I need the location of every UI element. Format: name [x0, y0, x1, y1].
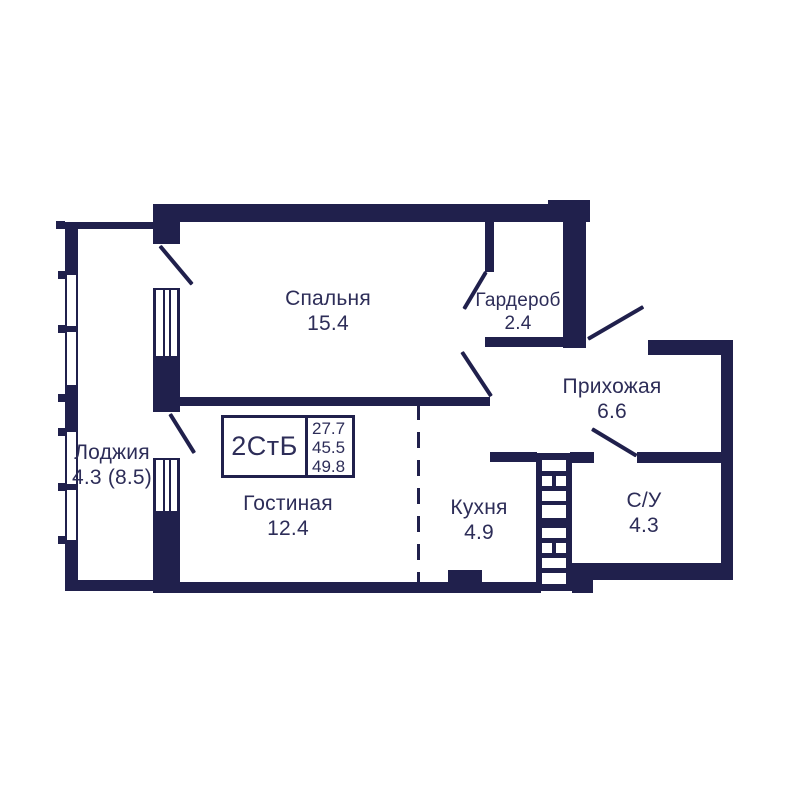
label-bedroom: Спальня 15.4	[285, 286, 371, 336]
wall-kitchen-step	[448, 570, 482, 583]
room-name: Прихожая	[563, 374, 662, 399]
room-area: 2.4	[475, 312, 560, 335]
wall-divider-mid	[153, 358, 180, 412]
unit-areas: 27.7 45.5 49.8	[305, 418, 352, 475]
wall-right-thick	[563, 200, 586, 348]
wall-joint-tick	[58, 483, 65, 491]
unit-type-label: 2СтБ	[224, 418, 305, 475]
unit-info-box: 2СтБ 27.7 45.5 49.8	[221, 415, 355, 478]
wall-bottom-main	[155, 582, 541, 593]
wall-joint-tick	[58, 271, 65, 279]
balcony-window-bedroom	[153, 288, 180, 358]
door-bedroom-balcony	[158, 245, 193, 286]
balcony-window-living	[153, 458, 180, 513]
wall-joint-tick	[58, 536, 65, 544]
wall-loggia-left-2	[65, 385, 78, 432]
unit-area-full: 49.8	[312, 457, 352, 476]
label-hallway: Прихожая 6.6	[563, 374, 662, 424]
wall-kitchen-top	[490, 452, 537, 462]
wall-wardrobe-bottom	[485, 337, 567, 347]
window-mullion	[65, 326, 78, 332]
wall-top	[153, 204, 590, 222]
room-name: Кухня	[450, 495, 507, 520]
wall-joint-tick	[56, 221, 65, 229]
room-area: 4.3 (8.5)	[72, 465, 152, 490]
room-name: Лоджия	[72, 440, 152, 465]
room-name: С/У	[627, 488, 662, 513]
unit-area-total: 45.5	[312, 438, 352, 457]
door-living-balcony	[168, 413, 196, 454]
room-name: Гостиная	[243, 491, 333, 516]
door-bedroom	[460, 351, 493, 397]
wall-bathroom-top	[637, 452, 731, 463]
wall-joint-tick	[58, 394, 65, 402]
label-loggia: Лоджия 4.3 (8.5)	[72, 440, 152, 490]
label-kitchen: Кухня 4.9	[450, 495, 507, 545]
wall-loggia-bottom	[65, 580, 155, 591]
room-area: 4.9	[450, 520, 507, 545]
wall-bedroom-bottom	[180, 397, 490, 406]
wall-bathroom-top-stub	[570, 452, 594, 463]
wall-joint-tick	[58, 325, 65, 333]
wall-loggia-top	[65, 222, 153, 229]
room-name: Гардероб	[475, 289, 560, 312]
wall-bathroom-step	[572, 575, 593, 593]
label-bathroom: С/У 4.3	[627, 488, 662, 538]
room-area: 4.3	[627, 513, 662, 538]
door-entrance	[587, 305, 644, 341]
unit-area-living: 27.7	[312, 419, 352, 438]
floor-plan: 2СтБ 27.7 45.5 49.8 Спальня 15.4 Гардеро…	[0, 0, 800, 800]
room-area: 12.4	[243, 516, 333, 541]
door-bathroom	[591, 427, 638, 457]
ventilation-shaft	[536, 453, 572, 591]
room-name: Спальня	[285, 286, 371, 311]
wall-bathroom-bottom	[572, 563, 733, 580]
wall-balcony-pier	[153, 204, 180, 244]
wall-loggia-left-1	[65, 222, 78, 275]
wall-divider-bottom	[153, 513, 180, 593]
label-living-room: Гостиная 12.4	[243, 491, 333, 541]
wall-joint-tick	[58, 428, 65, 436]
label-wardrobe: Гардероб 2.4	[475, 289, 560, 335]
wall-wardrobe-left	[485, 222, 494, 272]
room-area: 6.6	[563, 399, 662, 424]
zone-divider-dashed	[417, 404, 420, 582]
room-area: 15.4	[285, 311, 371, 336]
